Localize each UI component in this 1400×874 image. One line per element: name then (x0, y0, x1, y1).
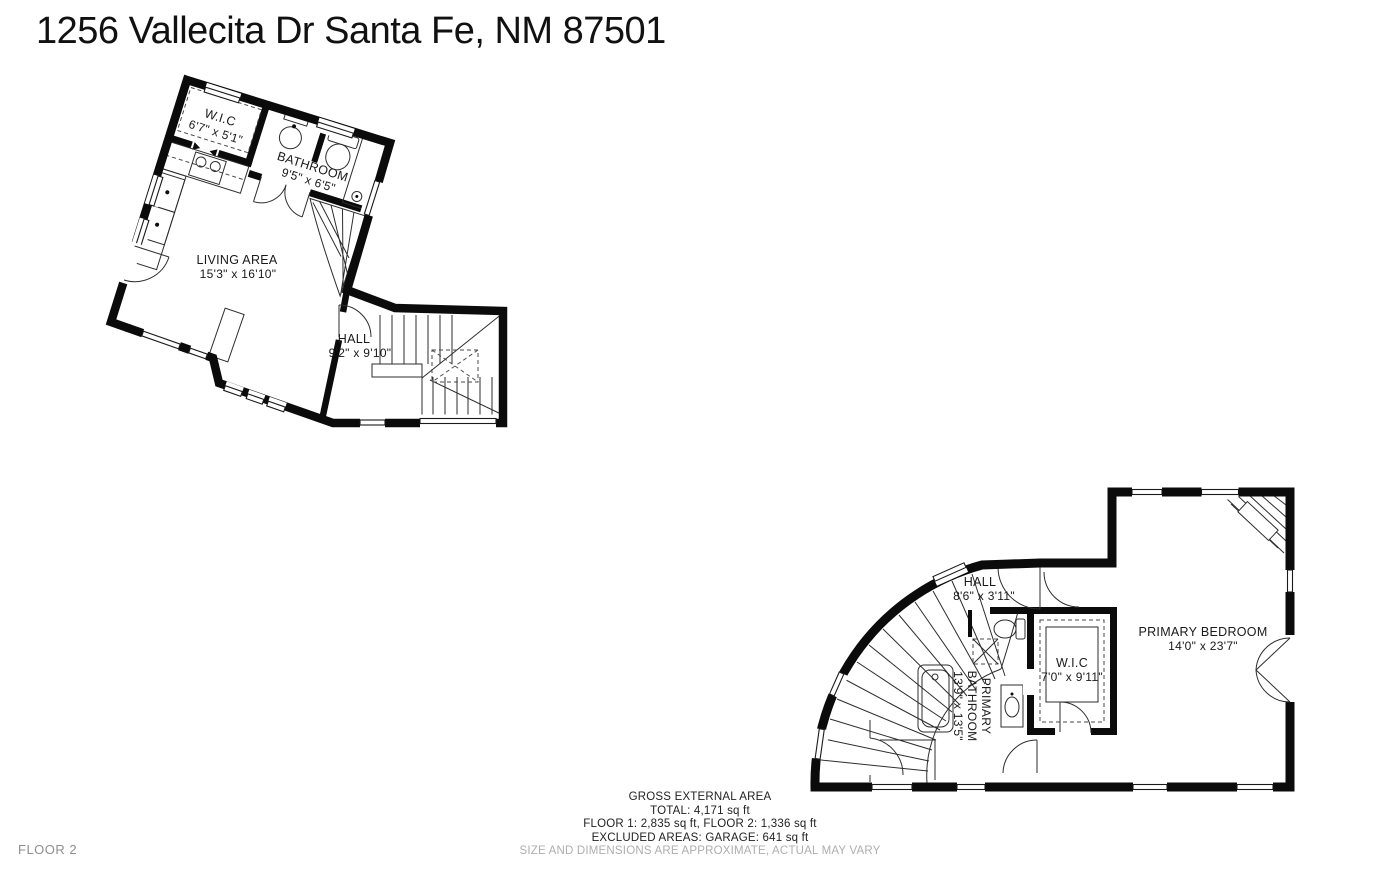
room-dims-primary-bedroom: 14'0" x 23'7" (1168, 639, 1238, 653)
room-label-primary-bedroom: PRIMARY BEDROOM (1138, 625, 1267, 639)
room-label-wic-2: W.I.C (1056, 656, 1088, 670)
svg-text:PRIMARY: PRIMARY (979, 678, 993, 735)
area-heading: GROSS EXTERNAL AREA (0, 791, 1400, 805)
floor-label: FLOOR 2 (18, 842, 77, 857)
area-total: TOTAL: 4,171 sq ft (0, 805, 1400, 819)
room-label-living-area: LIVING AREA (196, 253, 277, 267)
floor-plan-1: W.I.C 6'7" x 5'1" BATHROOM 9'5" x 6'5" (40, 60, 520, 450)
room-label-hall-2: HALL (964, 575, 996, 589)
shower-wall-stub (968, 610, 972, 637)
area-excluded: EXCLUDED AREAS: GARAGE: 641 sq ft (0, 832, 1400, 846)
page-title: 1256 Vallecita Dr Santa Fe, NM 87501 (36, 10, 666, 53)
room-dims-hall-1: 9'2" x 9'10" (329, 346, 392, 360)
stair-landing (372, 364, 422, 377)
hall-bath-wall (990, 607, 1027, 614)
floor-plan-2: HALL 8'6" x 3'11" PRIMARY BATHROOM 13'9"… (800, 480, 1310, 810)
room-dims-primary-bathroom: 13'9" x 13'5" (951, 671, 965, 741)
room-dims-living-area: 15'3" x 16'10" (200, 267, 277, 281)
room-label-hall-1: HALL (338, 332, 370, 346)
area-disclaimer: SIZE AND DIMENSIONS ARE APPROXIMATE, ACT… (0, 845, 1400, 859)
floor-plan-page: 1256 Vallecita Dr Santa Fe, NM 87501 (0, 0, 1400, 874)
room-dims-hall-2: 8'6" x 3'11" (953, 589, 1015, 603)
area-summary: GROSS EXTERNAL AREA TOTAL: 4,171 sq ft F… (0, 791, 1400, 859)
svg-text:BATHROOM: BATHROOM (965, 671, 979, 742)
room-label-primary-bathroom: PRIMARY BATHROOM 13'9" x 13'5" (951, 671, 993, 742)
area-floors: FLOOR 1: 2,835 sq ft, FLOOR 2: 1,336 sq … (0, 818, 1400, 832)
room-dims-wic-2: 7'0" x 9'11" (1041, 670, 1103, 684)
